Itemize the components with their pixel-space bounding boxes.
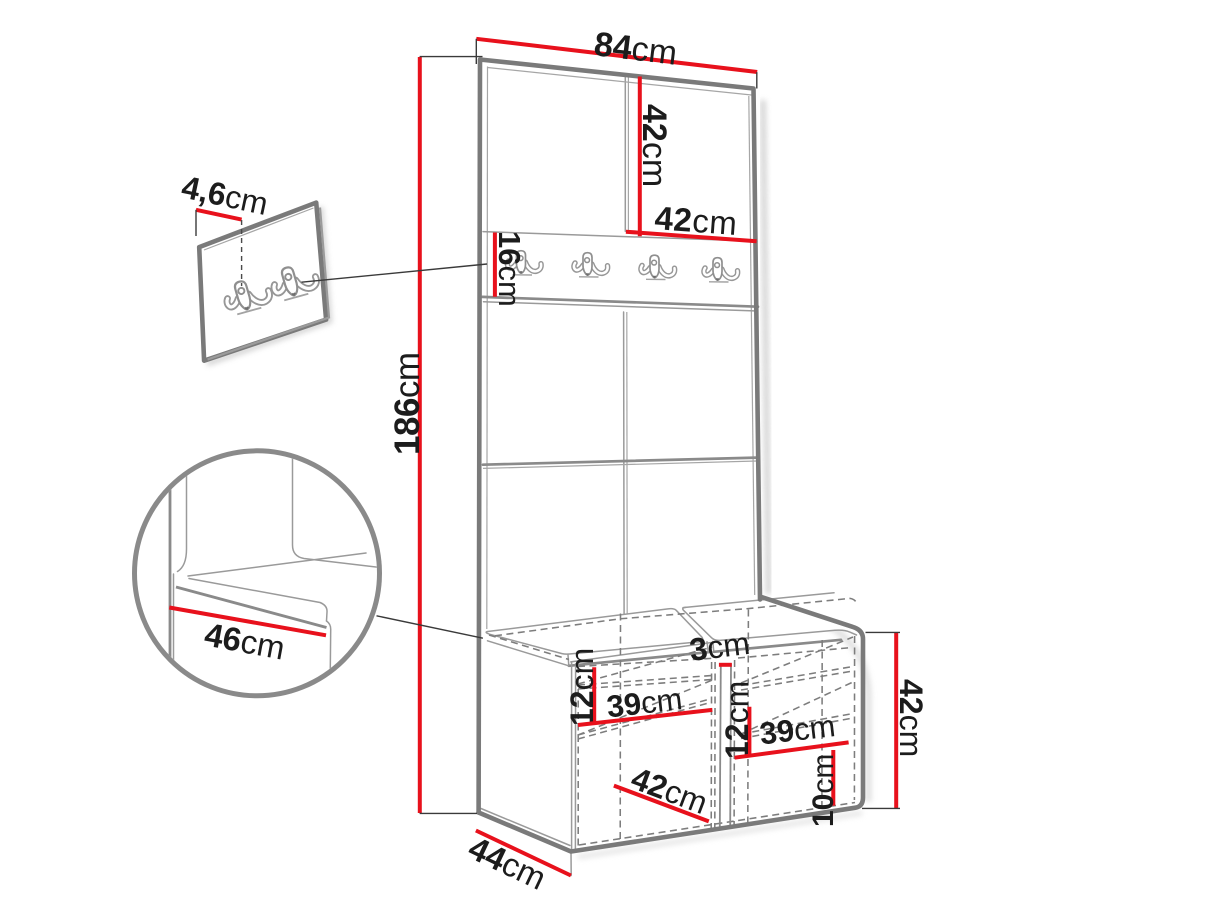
svg-text:3cm: 3cm	[687, 625, 751, 668]
svg-text:186cm: 186cm	[388, 352, 427, 455]
svg-text:12cm: 12cm	[564, 648, 600, 726]
svg-text:16cm: 16cm	[492, 231, 527, 307]
svg-text:10cm: 10cm	[807, 754, 840, 827]
svg-text:12cm: 12cm	[719, 681, 755, 759]
svg-text:42cm: 42cm	[653, 199, 738, 242]
svg-text:42cm: 42cm	[893, 679, 929, 757]
svg-text:42cm: 42cm	[635, 104, 673, 187]
